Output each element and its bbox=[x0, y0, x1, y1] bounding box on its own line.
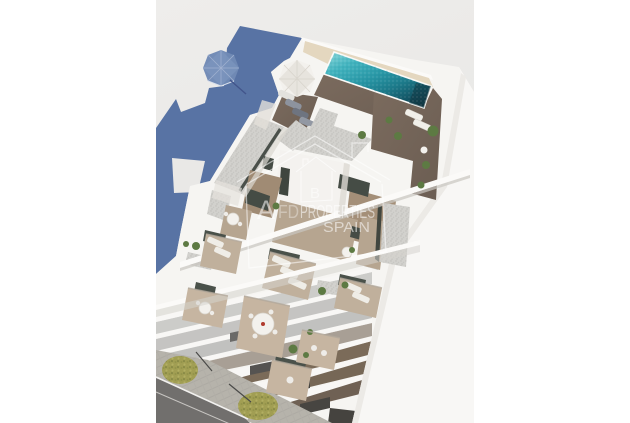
svg-text:SPAIN: SPAIN bbox=[323, 219, 370, 236]
svg-text:B: B bbox=[310, 185, 320, 202]
svg-text:FD: FD bbox=[278, 202, 299, 222]
svg-text:A: A bbox=[257, 195, 275, 225]
